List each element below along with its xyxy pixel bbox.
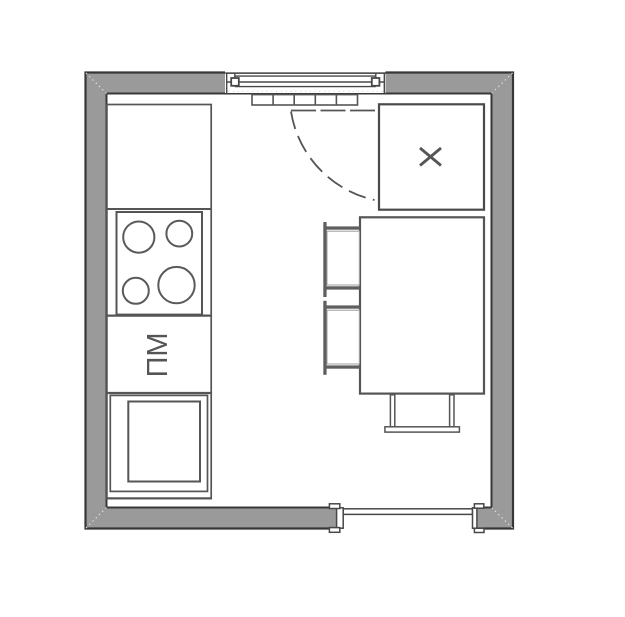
svg-text:ПМ: ПМ xyxy=(142,332,174,377)
